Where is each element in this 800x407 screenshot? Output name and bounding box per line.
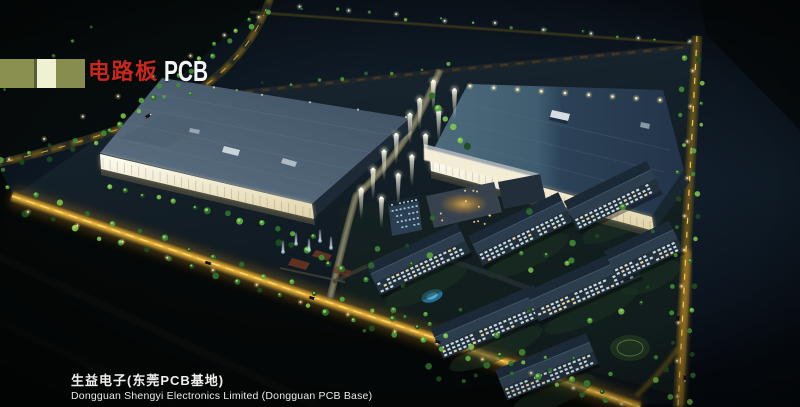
caption-chinese: 生益电子(东莞PCB基地) [71,374,372,389]
category-color-bar [0,59,85,88]
page: 电路板 PCB 生益电子(东莞PCB基地) Dongguan Shengyi E… [0,0,800,407]
title-chinese: 电路板 [88,60,159,87]
caption: 生益电子(东莞PCB基地) Dongguan Shengyi Electroni… [71,374,372,402]
bar-segment-cream [37,59,56,88]
bar-segment-olive [0,59,34,88]
bar-segment-olive-2 [56,59,85,88]
caption-english: Dongguan Shengyi Electronics Limited (Do… [71,391,372,403]
title-latin: PCB [164,58,208,87]
page-title: 电路板 PCB [88,58,225,87]
